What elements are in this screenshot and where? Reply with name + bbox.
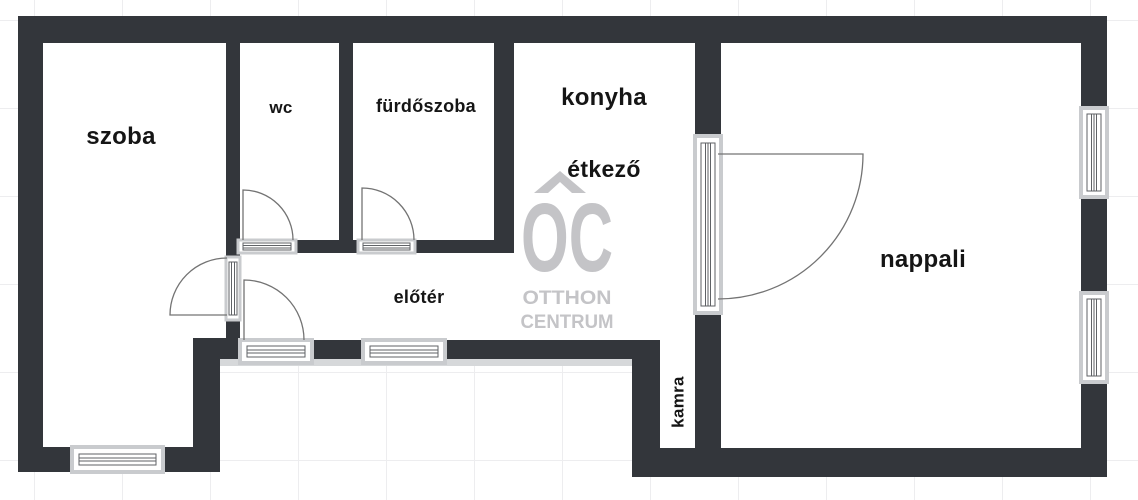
wall-wc-furdoszoba (339, 43, 353, 240)
floor-plan-drawing: OC OTTHON CENTRUM (0, 0, 1138, 500)
floor-plan: OC OTTHON CENTRUM (0, 0, 1138, 500)
window-icon (363, 340, 445, 363)
door-frame-icon (226, 257, 240, 320)
wall-left (18, 16, 43, 472)
wall-right-3 (1081, 382, 1107, 477)
window-icon (1081, 293, 1107, 382)
room-label-furdoszoba: fürdőszoba (376, 96, 477, 116)
room-label-nappali: nappali (880, 246, 966, 273)
door-frame-icon (240, 340, 312, 363)
wall-bottom-right (632, 448, 1107, 477)
door-frame-icon (238, 240, 296, 253)
room-label-eloter: előtér (394, 287, 445, 307)
room-label-konyha: konyha (561, 84, 647, 111)
logo-line2: CENTRUM (521, 312, 614, 333)
wall-szoba-door-block (226, 318, 240, 342)
wall-right-1 (1081, 16, 1107, 108)
window-icon (695, 136, 721, 313)
window-icon (72, 447, 163, 472)
room-label-etkezo: étkező (567, 156, 640, 182)
room-label-wc: wc (268, 98, 292, 117)
room-label-kamra: kamra (669, 376, 688, 428)
wall-right-2 (1081, 197, 1107, 293)
wall-hall-top-1 (296, 240, 358, 253)
door-frame-icon (358, 240, 415, 253)
room-label-szoba: szoba (86, 123, 156, 150)
wall-konyha-nappali-upper (695, 43, 721, 138)
wall-furdoszoba-konyha (494, 43, 514, 253)
logo-line1: OTTHON (523, 288, 612, 309)
wall-szoba-wc (226, 43, 240, 257)
window-icon (1081, 108, 1107, 197)
wall-top (18, 16, 1107, 43)
wall-konyha-nappali-lower (695, 313, 721, 448)
logo-initials: OC (521, 183, 613, 292)
watermark-logo: OC OTTHON CENTRUM (521, 171, 614, 333)
